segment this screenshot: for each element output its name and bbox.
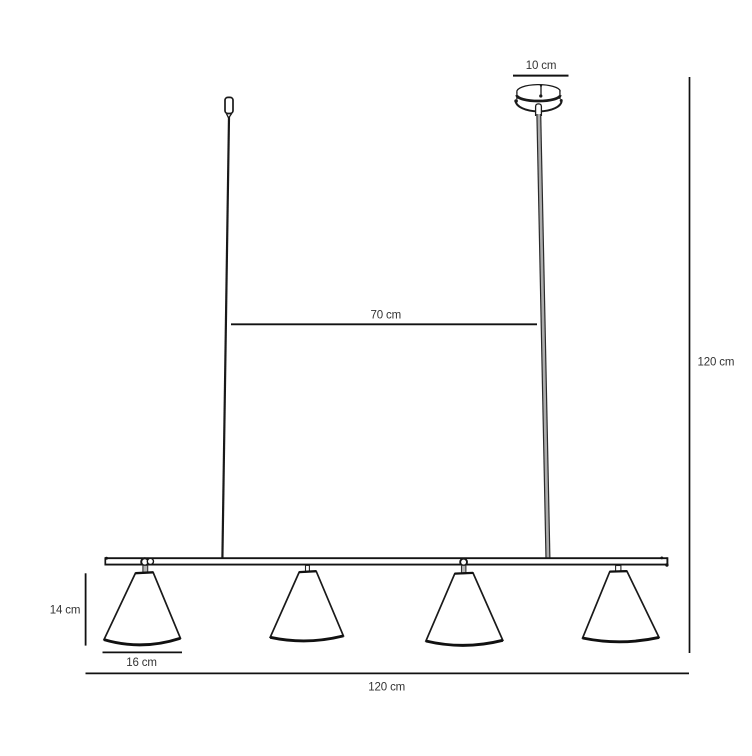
svg-text:120 cm: 120 cm	[368, 682, 405, 694]
svg-text:16 cm: 16 cm	[126, 657, 157, 669]
svg-text:70 cm: 70 cm	[371, 309, 402, 321]
svg-text:14 cm: 14 cm	[50, 604, 81, 616]
svg-text:10 cm: 10 cm	[526, 60, 557, 72]
svg-text:120 cm: 120 cm	[698, 357, 735, 369]
